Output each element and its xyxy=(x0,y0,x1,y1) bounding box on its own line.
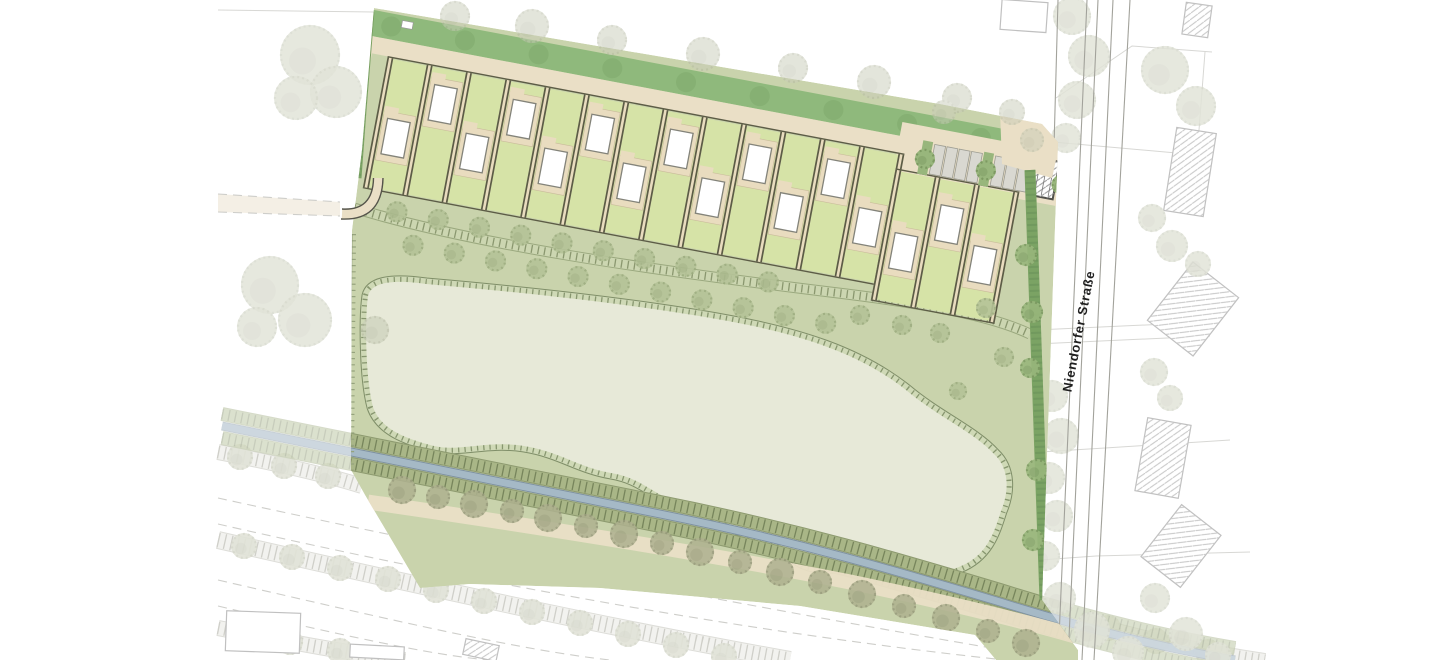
tree-shading xyxy=(1046,512,1060,526)
tree-shading xyxy=(1018,252,1028,262)
existing-building xyxy=(225,611,300,654)
tree-shading xyxy=(783,64,797,78)
boundary-tree-icon xyxy=(999,99,1025,125)
riverside-tree-icon xyxy=(610,520,638,548)
tree-shading xyxy=(690,549,703,562)
orchard-tree-icon xyxy=(892,315,912,335)
existing-tree-icon xyxy=(1041,500,1073,532)
existing-tree-icon xyxy=(310,66,362,118)
tree-shading xyxy=(281,93,301,113)
tree-shading xyxy=(1182,101,1200,119)
tree-shading xyxy=(997,355,1006,364)
existing-tree-icon xyxy=(274,76,318,120)
riverside-tree-icon xyxy=(932,604,960,632)
tree-shading xyxy=(862,78,877,93)
tree-shading xyxy=(231,454,243,466)
tree-shading xyxy=(1064,95,1081,112)
tree-shading xyxy=(1048,432,1064,448)
existing-tree-icon xyxy=(1140,358,1168,386)
tree-shading xyxy=(427,587,439,599)
site-plan-canvas: Niendorfer Straße xyxy=(0,0,1440,660)
existing-tree-icon xyxy=(1176,86,1216,126)
riverside-tree-icon xyxy=(460,490,488,518)
hedge-tree-icon xyxy=(1022,529,1044,551)
existing-tree-icon xyxy=(1043,418,1079,454)
tree-shading xyxy=(250,278,276,304)
tree-shading xyxy=(1023,366,1032,375)
tree-shading xyxy=(770,569,783,582)
tree-shading xyxy=(1145,594,1159,608)
hedge-tree-icon xyxy=(1020,358,1040,378)
tree-shading xyxy=(732,559,743,570)
tree-shading xyxy=(445,12,459,26)
boundary-tree-icon xyxy=(686,37,720,71)
existing-building xyxy=(350,644,405,660)
tree-shading xyxy=(1148,64,1170,86)
tree-shading xyxy=(1059,11,1076,28)
existing-tree-icon xyxy=(361,316,389,344)
riverside-tree-icon xyxy=(534,504,562,532)
boundary-tree-icon xyxy=(597,25,627,55)
tree-shading xyxy=(243,322,261,340)
building-footprint xyxy=(1000,0,1048,33)
existing-building xyxy=(1000,0,1048,33)
hedgerow-tree-icon xyxy=(519,599,545,625)
tree-shading xyxy=(464,501,477,514)
existing-tree-icon xyxy=(1169,617,1203,651)
riverside-tree-icon xyxy=(500,499,524,523)
orchard-tree-icon xyxy=(994,347,1014,367)
tree-shading xyxy=(283,554,295,566)
hedgerow-tree-icon xyxy=(567,610,593,636)
existing-tree-icon xyxy=(1185,251,1211,277)
boundary-tree-icon xyxy=(515,9,549,43)
tree-shading xyxy=(286,313,310,337)
tree-shading xyxy=(619,631,631,643)
tree-shading xyxy=(896,603,907,614)
building-hatch xyxy=(1182,2,1212,37)
tree-shading xyxy=(952,389,960,397)
tree-shading xyxy=(812,579,823,590)
hedge-tree-icon xyxy=(1026,459,1048,481)
boundary-tree-icon xyxy=(1020,128,1044,152)
tree-shading xyxy=(318,86,341,109)
tree-shading xyxy=(933,331,942,340)
riverside-tree-icon xyxy=(766,558,794,586)
tree-shading xyxy=(289,48,316,75)
existing-tree-icon xyxy=(1157,385,1183,411)
riverside-tree-icon xyxy=(976,619,1000,643)
building-footprint xyxy=(225,611,300,654)
tree-shading xyxy=(1003,109,1015,121)
tree-shading xyxy=(936,109,947,120)
riverside-tree-icon xyxy=(686,538,714,566)
hedge-tree-icon xyxy=(1021,301,1043,323)
orchard-tree-icon xyxy=(930,323,950,343)
tree-shading xyxy=(1025,537,1035,547)
riverside-tree-icon xyxy=(426,485,450,509)
tree-shading xyxy=(1024,137,1035,148)
tree-shading xyxy=(331,648,343,660)
tree-shading xyxy=(520,22,535,37)
riverside-tree-icon xyxy=(808,570,832,594)
tree-shading xyxy=(430,494,441,505)
riverside-tree-icon xyxy=(892,594,916,618)
tree-shading xyxy=(1142,215,1155,228)
existing-tree-icon xyxy=(237,307,277,347)
tree-shading xyxy=(1189,261,1201,273)
tree-shading xyxy=(1016,640,1029,653)
hedgerow-tree-icon xyxy=(615,621,641,647)
tree-shading xyxy=(602,36,616,50)
existing-tree-icon xyxy=(1068,35,1110,77)
hedgerow-tree-icon xyxy=(663,632,689,658)
existing-tree-icon xyxy=(278,293,332,347)
riverside-tree-icon xyxy=(1012,629,1040,657)
tree-shading xyxy=(319,473,331,485)
hedge-tree-icon xyxy=(1015,244,1037,266)
hedgerow-tree-icon xyxy=(327,555,353,581)
existing-tree-icon xyxy=(1138,204,1166,232)
tree-shading xyxy=(1144,369,1157,382)
tree-shading xyxy=(654,540,665,551)
existing-tree-icon xyxy=(1074,612,1110,648)
tree-shading xyxy=(1174,630,1189,645)
tree-shading xyxy=(980,628,991,639)
tree-shading xyxy=(235,543,247,555)
orchard-tree-icon xyxy=(976,298,996,318)
existing-tree-icon xyxy=(1140,583,1170,613)
tree-shading xyxy=(578,523,589,534)
site-plan-svg: Niendorfer Straße xyxy=(0,0,1440,660)
tree-shading xyxy=(331,565,343,577)
tree-shading xyxy=(1161,395,1173,407)
boundary-tree-icon xyxy=(440,1,470,31)
tree-shading xyxy=(1161,242,1175,256)
riverside-tree-icon xyxy=(574,514,598,538)
tree-shading xyxy=(691,50,706,65)
boundary-tree-icon xyxy=(857,65,891,99)
tree-shading xyxy=(379,576,391,588)
riverside-tree-icon xyxy=(728,550,752,574)
tree-shading xyxy=(523,609,535,621)
tree-shading xyxy=(936,615,949,628)
existing-tree-icon xyxy=(1156,230,1188,262)
riverside-tree-icon xyxy=(848,580,876,608)
building-footprint xyxy=(350,644,405,660)
riverside-tree-icon xyxy=(388,476,416,504)
hedgerow-tree-icon xyxy=(231,533,257,559)
existing-building xyxy=(1182,2,1212,37)
hedgerow-tree-icon xyxy=(375,566,401,592)
riverside-tree-icon xyxy=(650,531,674,555)
tree-shading xyxy=(853,313,862,322)
existing-tree-icon xyxy=(1058,81,1096,119)
tree-shading xyxy=(392,487,405,500)
tree-shading xyxy=(365,327,378,340)
tree-shading xyxy=(1079,626,1095,642)
tree-shading xyxy=(475,598,487,610)
tree-shading xyxy=(895,323,904,332)
tree-shading xyxy=(571,620,583,632)
orchard-tree-icon xyxy=(949,382,967,400)
hedgerow-tree-icon xyxy=(471,588,497,614)
existing-tree-icon xyxy=(1141,46,1189,94)
tree-shading xyxy=(614,531,627,544)
boundary-tree-icon xyxy=(778,53,808,83)
boundary-tree-icon xyxy=(932,100,956,124)
hedgerow-tree-icon xyxy=(279,544,305,570)
tree-shading xyxy=(275,463,287,475)
tree-shading xyxy=(852,591,865,604)
tree-shading xyxy=(979,306,988,315)
tree-shading xyxy=(667,642,679,654)
tree-shading xyxy=(1024,309,1034,319)
tree-shading xyxy=(538,515,551,528)
tree-shading xyxy=(1029,467,1039,477)
orchard-tree-icon xyxy=(850,305,870,325)
tree-shading xyxy=(504,508,515,519)
